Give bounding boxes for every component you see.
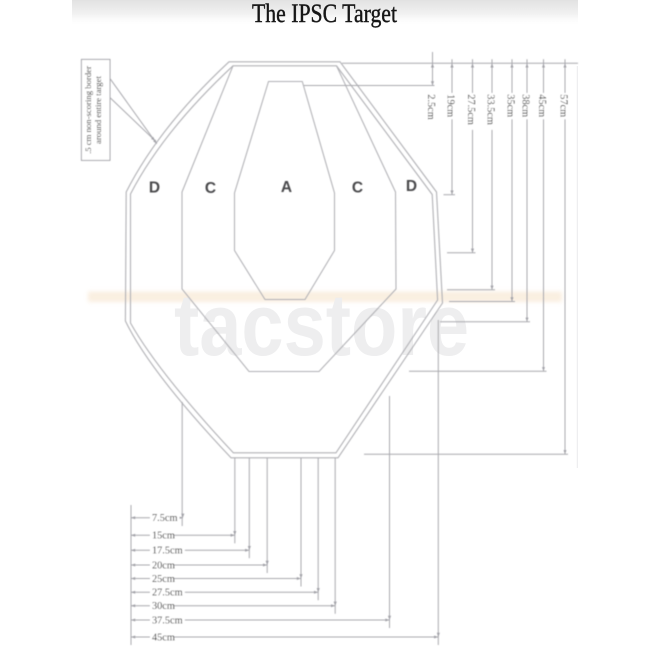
svg-text:around entire target: around entire target [93,75,103,143]
svg-text:19cm: 19cm [444,94,455,117]
svg-text:57cm: 57cm [557,94,568,117]
svg-text:7.5cm: 7.5cm [152,513,177,524]
svg-text:27.5cm: 27.5cm [152,588,183,599]
svg-text:38cm: 38cm [519,94,530,117]
svg-text:33.5cm: 33.5cm [484,94,495,125]
svg-text:A: A [281,179,292,196]
svg-text:45cm: 45cm [152,632,175,643]
svg-text:45cm: 45cm [536,94,547,117]
svg-text:D: D [406,178,417,195]
svg-text:The IPSC Target: The IPSC Target [252,0,398,28]
svg-text:30cm: 30cm [152,601,175,612]
svg-text:C: C [352,180,363,197]
svg-text:27.5cm: 27.5cm [465,94,476,125]
svg-text:37.5cm: 37.5cm [152,615,183,626]
svg-text:D: D [149,180,160,197]
svg-text:20cm: 20cm [152,560,175,571]
svg-text:15cm: 15cm [152,531,175,542]
svg-text:C: C [205,180,216,197]
svg-text:17.5cm: 17.5cm [152,546,183,557]
svg-text:25cm: 25cm [152,574,175,585]
svg-text:2.5cm: 2.5cm [425,94,436,119]
svg-text:tacstore: tacstore [174,275,469,374]
svg-text:.5 cm non-scoring border: .5 cm non-scoring border [83,66,93,154]
svg-text:35cm: 35cm [504,94,515,117]
